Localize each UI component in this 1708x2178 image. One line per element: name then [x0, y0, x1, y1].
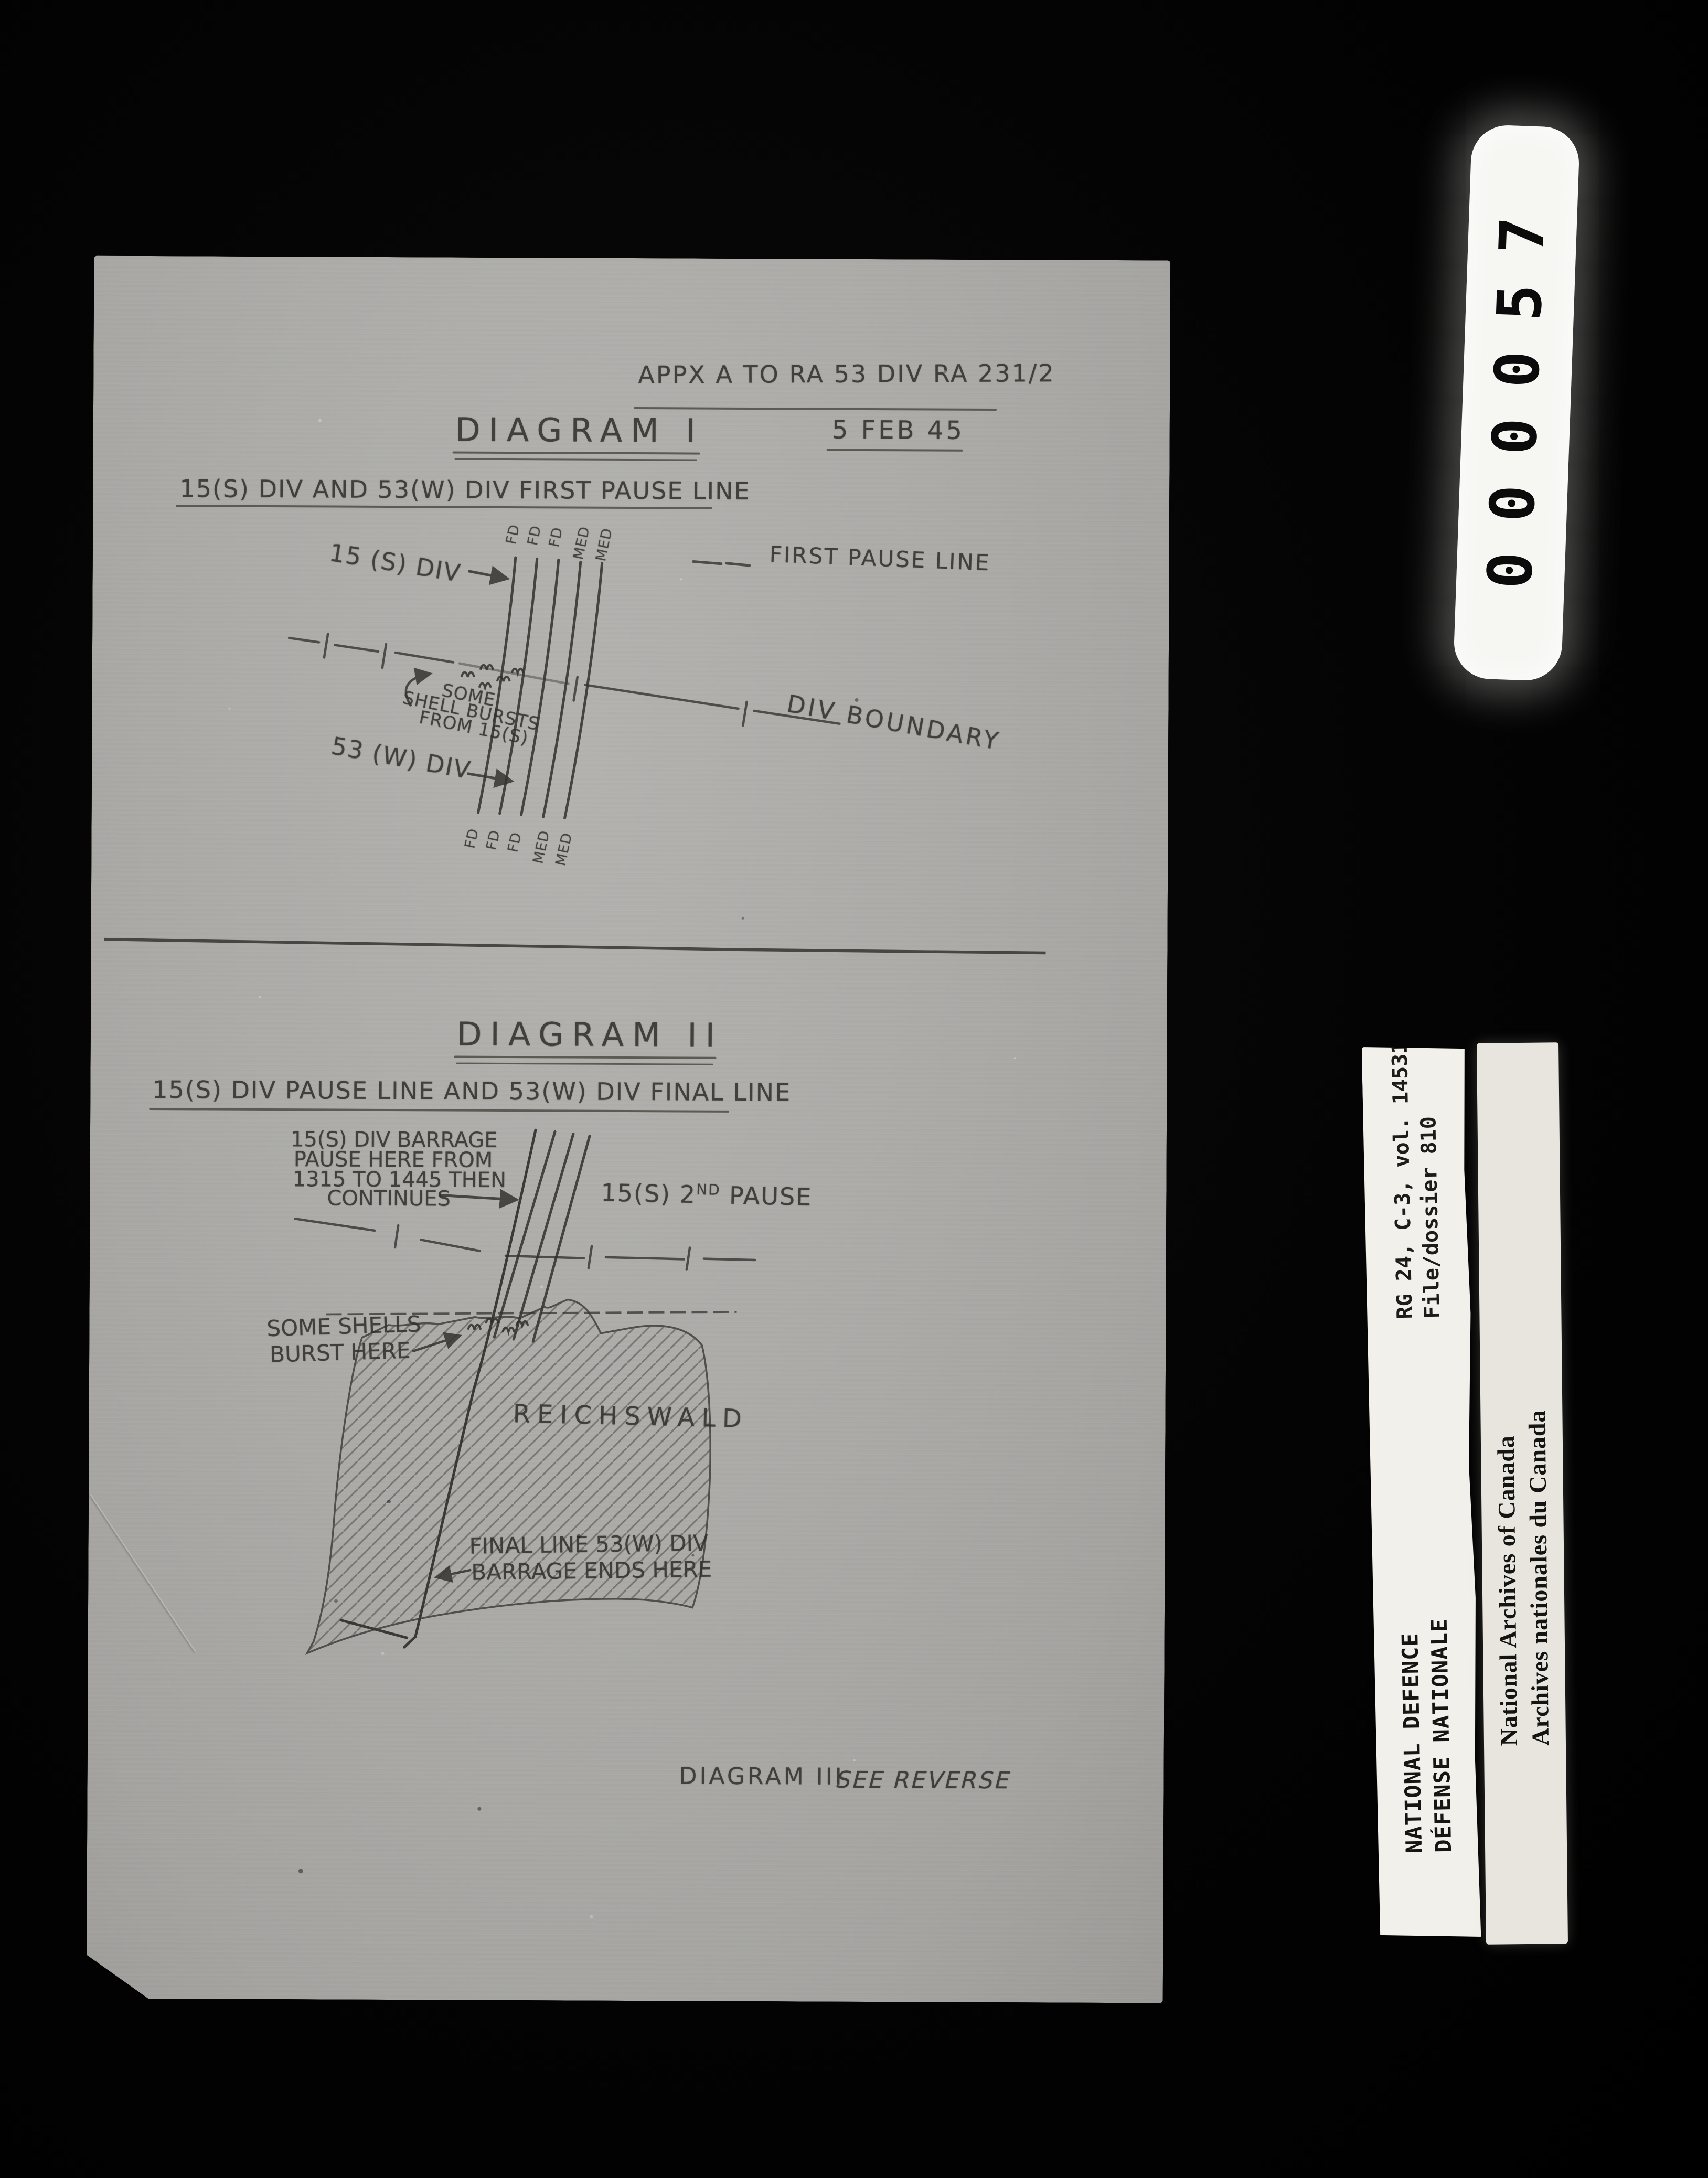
lane-label-top: MED: [593, 527, 616, 563]
see-reverse-label: SEE REVERSE: [833, 1767, 1015, 1794]
paper-dark-specks: [94, 256, 97, 259]
diagram1-title: DIAGRAM I: [455, 411, 704, 450]
national-defence-line2: DÉFENSE NATIONALE: [1425, 1618, 1459, 1853]
diagram1-barrage-lanes: [478, 558, 602, 818]
diagram2-shell-burst-marks: [468, 1319, 528, 1332]
diagram2-final-line-note: FINAL LINE 53(W) DIV BARRAGE ENDS HERE: [94, 256, 1170, 261]
national-archives-strip: National Archives of Canada Archives nat…: [1477, 1042, 1568, 1945]
lane-label-bottom: MED: [530, 829, 553, 865]
diagram2-final-note-arrow: [436, 1570, 471, 1577]
lane-label-bottom: MED: [552, 831, 575, 867]
lane-label-bottom: FD: [483, 828, 503, 851]
lane-label-bottom: FD: [505, 831, 525, 854]
diagram1-title-underline1: [453, 452, 700, 455]
diagram2-barrage-lanes: [494, 1131, 590, 1342]
appendix-underline: [634, 407, 997, 411]
microfilm-frame: { "film": { "frame_number": "000057", "l…: [0, 0, 1708, 2178]
archive-reference-text: RG 24, C-3, vol. 14531 File/dossier 810: [1386, 1040, 1446, 1319]
date-underline: [827, 449, 963, 452]
diagram-separator-line: [104, 939, 1045, 953]
diagram1-legend-dash-sample: [693, 562, 750, 565]
lane-label-bottom: FD: [462, 827, 482, 850]
appendix-reference: APPX A TO RA 53 DIV RA 231/2: [638, 359, 1055, 389]
diagram1-15s-arrow: [468, 571, 507, 579]
diagram2-subtitle: 15(S) DIV PAUSE LINE AND 53(W) DIV FINAL…: [152, 1075, 791, 1106]
diagram1-shell-burst-marks: [462, 665, 524, 688]
document-date: 5 FEB 45: [832, 415, 965, 445]
archive-reference-strip: RG 24, C-3, vol. 14531 File/dossier 810 …: [1362, 1045, 1483, 1938]
diagram2-pause-note: 15(S) DIV BARRAGE PAUSE HERE FROM 1315 T…: [94, 256, 1170, 261]
diagram3-label: DIAGRAM III: [679, 1763, 845, 1790]
scanned-document-page: APPX A TO RA 53 DIV RA 231/2 5 FEB 45 DI…: [87, 256, 1170, 2003]
diagram2-pause-boundary-line: [295, 1219, 755, 1270]
national-archives-en: National Archives of Canada: [1490, 1410, 1525, 1746]
diagram1-subtitle-underline: [176, 505, 712, 509]
diagram2-title-underline1: [454, 1056, 717, 1059]
diagram1-div-boundary-line: [289, 634, 840, 726]
national-defence-line1: NATIONAL DEFENCE: [1395, 1619, 1429, 1854]
diagram1-legend-first-pause: FIRST PAUSE LINE: [769, 541, 991, 576]
diagram2-shells-note: SOME SHELLS BURST HERE: [94, 256, 1170, 261]
lane-label-top: MED: [570, 525, 593, 561]
diagram1-subtitle: 15(S) DIV AND 53(W) DIV FIRST PAUSE LINE: [179, 474, 750, 505]
archive-reference-line1: RG 24, C-3, vol. 14531: [1386, 1041, 1419, 1319]
paper-corner-fold-mark: [94, 1962, 141, 1996]
national-archives-fr: Archives nationales du Canada: [1521, 1410, 1556, 1746]
national-defence-text: NATIONAL DEFENCE DÉFENSE NATIONALE: [1395, 1618, 1459, 1853]
lane-label-top: FD: [503, 523, 523, 546]
diagram1-div-boundary-label: DIV BOUNDARY: [785, 689, 1003, 756]
diagram2-title: DIAGRAM II: [457, 1015, 723, 1054]
diagram2-shells-arrow: [412, 1336, 460, 1351]
frame-number: 000057: [1474, 185, 1560, 620]
diagram1-shell-bursts-note: SOME SHELL BURSTS FROM 15(S): [94, 256, 1170, 261]
reichswald-label: REICHSWALD: [513, 1399, 749, 1434]
lane-label-top: FD: [525, 524, 545, 547]
diagram-linework: [87, 256, 1170, 2003]
diagram1-53w-label: 53 (W) DIV: [329, 732, 473, 785]
frame-number-stamp: 000057: [1453, 124, 1581, 682]
lane-label-top: FD: [546, 526, 566, 549]
diagram2-second-pause-label: 15(S) 2ND PAUSE: [601, 1178, 813, 1211]
diagram2-subtitle-underline: [149, 1108, 729, 1113]
diagram1-53w-arrow: [467, 774, 511, 781]
diagram1-title-underline2: [455, 458, 697, 461]
paper-crease: [90, 1494, 196, 1652]
diagram2-continues-arrow: [439, 1195, 516, 1200]
diagram2-title-underline2: [456, 1063, 713, 1065]
archive-reference-line2: File/dossier 810: [1413, 1040, 1446, 1319]
diagram1-15s-label: 15 (S) DIV: [327, 538, 463, 588]
national-archives-text: National Archives of Canada Archives nat…: [1490, 1410, 1556, 1746]
